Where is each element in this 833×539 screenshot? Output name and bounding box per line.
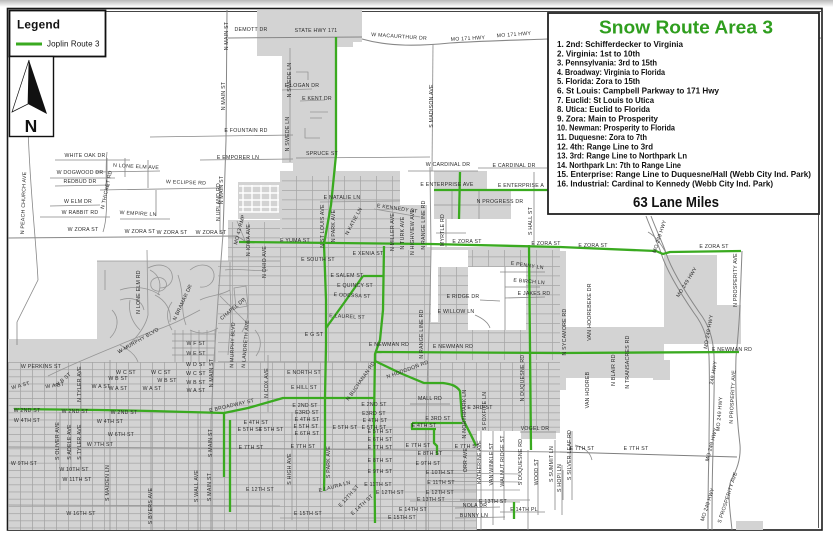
- svg-text:E 5TH ST: E 5TH ST: [294, 424, 319, 430]
- svg-text:E 11TH ST: E 11TH ST: [427, 480, 455, 486]
- svg-text:S HOPI LN: S HOPI LN: [557, 464, 563, 492]
- svg-text:E ZORA ST: E ZORA ST: [531, 241, 561, 247]
- svg-text:N TURK AVE: N TURK AVE: [400, 216, 406, 249]
- svg-text:BUNNY LN: BUNNY LN: [460, 513, 488, 519]
- svg-text:N PARK AVE: N PARK AVE: [331, 209, 337, 242]
- svg-text:W 6TH ST: W 6TH ST: [108, 432, 135, 438]
- svg-text:E 3RD ST: E 3RD ST: [467, 405, 493, 411]
- svg-text:W C ST: W C ST: [186, 371, 206, 377]
- svg-text:VAN HOOREB: VAN HOOREB: [585, 371, 591, 408]
- svg-text:VAN WINKLE ST: VAN WINKLE ST: [489, 442, 495, 486]
- svg-text:S PARK AVE: S PARK AVE: [326, 446, 332, 479]
- svg-text:N TRANSACRES RD: N TRANSACRES RD: [625, 335, 631, 388]
- svg-text:W 2ND ST: W 2ND ST: [62, 409, 89, 415]
- svg-text:S HALL ST: S HALL ST: [528, 206, 534, 235]
- svg-text:W B ST: W B ST: [157, 378, 177, 384]
- svg-text:W DOGWOOD DR: W DOGWOOD DR: [57, 170, 104, 176]
- svg-text:S MAIN ST: S MAIN ST: [207, 472, 213, 501]
- svg-text:E NEWMAN RD: E NEWMAN RD: [712, 347, 752, 353]
- svg-text:N MAIN ST: N MAIN ST: [209, 358, 215, 387]
- svg-text:W RABBIT RD: W RABBIT RD: [62, 210, 99, 216]
- svg-text:W A ST: W A ST: [187, 388, 206, 394]
- svg-text:E LOGAN DR: E LOGAN DR: [285, 83, 320, 89]
- svg-text:E CARDINAL DR: E CARDINAL DR: [492, 163, 535, 169]
- svg-text:N IOWA AVE: N IOWA AVE: [246, 224, 252, 256]
- svg-text:S BYERS AVE: S BYERS AVE: [148, 488, 154, 525]
- svg-text:E 4TH ST: E 4TH ST: [363, 418, 388, 424]
- svg-text:Snow Route Area 3: Snow Route Area 3: [599, 18, 773, 38]
- svg-text:N TYLER AVE: N TYLER AVE: [77, 366, 83, 402]
- svg-text:E XENIA ST: E XENIA ST: [353, 251, 384, 257]
- svg-text:ORR AVE: ORR AVE: [463, 448, 469, 473]
- svg-text:63 Lane Miles: 63 Lane Miles: [633, 195, 719, 211]
- svg-text:E3RD ST: E3RD ST: [295, 410, 319, 416]
- svg-text:S MADISON AVE: S MADISON AVE: [429, 84, 435, 128]
- svg-text:W E ST: W E ST: [186, 351, 206, 357]
- svg-text:E 15TH ST: E 15TH ST: [294, 511, 322, 517]
- svg-text:N RANGE LINE RD: N RANGE LINE RD: [419, 309, 425, 358]
- svg-text:S DUQUESNE RD: S DUQUESNE RD: [518, 439, 524, 486]
- svg-text:S HIGH AVE: S HIGH AVE: [287, 453, 293, 485]
- svg-text:E 12TH ST: E 12TH ST: [426, 490, 454, 496]
- svg-text:E ZORA ST: E ZORA ST: [699, 244, 729, 250]
- svg-text:S FOXFIRE LN: S FOXFIRE LN: [482, 392, 488, 430]
- svg-text:E KENT DR: E KENT DR: [302, 96, 332, 102]
- svg-text:MALL RD: MALL RD: [418, 396, 442, 402]
- svg-text:W ZORA ST: W ZORA ST: [196, 230, 227, 236]
- svg-text:N DUQUESNE RD: N DUQUESNE RD: [520, 355, 526, 402]
- svg-text:S ADELE AVE: S ADELE AVE: [67, 424, 73, 460]
- svg-text:S SILVER LEAF RD: S SILVER LEAF RD: [567, 430, 573, 480]
- svg-text:VAN HOOREBEKE DR: VAN HOOREBEKE DR: [587, 283, 593, 341]
- svg-text:N OHIO AVE: N OHIO AVE: [262, 246, 268, 278]
- svg-text:W 10TH ST: W 10TH ST: [59, 467, 89, 473]
- svg-text:S TYLER AVE: S TYLER AVE: [77, 424, 83, 460]
- svg-text:E 7TH ST: E 7TH ST: [368, 445, 393, 451]
- svg-text:E NORTH ST: E NORTH ST: [287, 370, 321, 376]
- svg-text:E ZORA ST: E ZORA ST: [452, 239, 482, 245]
- svg-text:W ZORA ST: W ZORA ST: [157, 230, 188, 236]
- svg-text:N MAIN ST: N MAIN ST: [224, 21, 230, 50]
- svg-text:E 5TH ST: E 5TH ST: [368, 429, 393, 435]
- svg-text:E RIDGE DR: E RIDGE DR: [447, 294, 480, 300]
- svg-text:E SALEM ST: E SALEM ST: [330, 273, 364, 279]
- svg-text:E 9TH ST: E 9TH ST: [416, 461, 441, 467]
- svg-text:Legend: Legend: [17, 18, 60, 32]
- svg-text:E 6TH ST: E 6TH ST: [368, 437, 393, 443]
- svg-text:E HILL ST: E HILL ST: [291, 385, 318, 391]
- svg-text:E 10TH ST: E 10TH ST: [426, 470, 454, 476]
- svg-text:E 5TH ST: E 5TH ST: [259, 427, 284, 433]
- svg-text:N SWEDE LN: N SWEDE LN: [287, 63, 293, 98]
- svg-text:W 4TH ST: W 4TH ST: [14, 418, 41, 424]
- svg-text:KATHERINE AVE: KATHERINE AVE: [477, 440, 483, 484]
- svg-text:W F ST: W F ST: [186, 341, 206, 347]
- svg-text:E NATALIE LN: E NATALIE LN: [324, 195, 361, 201]
- svg-text:WHITE OAK DR: WHITE OAK DR: [64, 153, 105, 159]
- svg-text:S MAIDEN LN: S MAIDEN LN: [105, 465, 111, 501]
- svg-text:E G ST: E G ST: [305, 332, 324, 338]
- svg-text:W 7TH ST: W 7TH ST: [87, 442, 114, 448]
- svg-text:W B ST: W B ST: [108, 376, 128, 382]
- svg-text:N MAIN ST: N MAIN ST: [221, 81, 227, 110]
- svg-text:N PROSPERITY AVE: N PROSPERITY AVE: [733, 253, 739, 307]
- svg-text:E 6TH ST: E 6TH ST: [295, 431, 320, 437]
- svg-text:W CARDINAL DR: W CARDINAL DR: [426, 162, 471, 168]
- svg-text:N PROGRESS DR: N PROGRESS DR: [477, 199, 524, 205]
- svg-text:E NEWMAN RD: E NEWMAN RD: [369, 342, 409, 348]
- svg-text:Joplin Route 3: Joplin Route 3: [47, 40, 100, 49]
- svg-text:W A ST: W A ST: [143, 386, 162, 392]
- svg-text:E 8TH ST: E 8TH ST: [418, 451, 443, 457]
- svg-text:E 7TH ST: E 7TH ST: [239, 445, 264, 451]
- svg-text:N LONE ELM RD: N LONE ELM RD: [136, 270, 142, 314]
- svg-text:E 14TH PL: E 14TH PL: [510, 507, 538, 513]
- svg-text:W ZORA ST: W ZORA ST: [68, 227, 99, 233]
- svg-text:MYRTLE RD: MYRTLE RD: [440, 214, 446, 246]
- svg-text:W 11TH ST: W 11TH ST: [63, 477, 93, 483]
- svg-text:VOGEL DR: VOGEL DR: [521, 426, 550, 432]
- svg-text:E EMPORER LN: E EMPORER LN: [217, 155, 259, 161]
- svg-text:E NEWMAN RD: E NEWMAN RD: [433, 344, 473, 350]
- svg-text:N NORTHPARK LN: N NORTHPARK LN: [462, 390, 468, 439]
- svg-text:W ZORA ST: W ZORA ST: [125, 229, 156, 235]
- svg-text:E 7TH ST: E 7TH ST: [624, 446, 649, 452]
- svg-text:SPRUCE ST: SPRUCE ST: [306, 151, 339, 157]
- svg-text:E 4TH ST: E 4TH ST: [412, 423, 437, 429]
- svg-text:E FOUNTAIN RD: E FOUNTAIN RD: [224, 128, 267, 134]
- svg-text:N BLAIR RD: N BLAIR RD: [611, 354, 617, 386]
- svg-text:E 3RD ST: E 3RD ST: [425, 416, 451, 422]
- svg-text:WALNUT RIDGE ST: WALNUT RIDGE ST: [500, 435, 506, 487]
- svg-text:E 11TH ST: E 11TH ST: [364, 482, 392, 488]
- svg-text:N SYCAMORE RD: N SYCAMORE RD: [562, 308, 568, 355]
- svg-text:W B ST: W B ST: [186, 380, 206, 386]
- svg-text:E ZORA ST: E ZORA ST: [578, 243, 608, 249]
- svg-text:W 2ND ST: W 2ND ST: [14, 408, 41, 414]
- svg-text:S OLIVER AVE: S OLIVER AVE: [55, 422, 61, 460]
- svg-text:E 2ND ST: E 2ND ST: [292, 403, 318, 409]
- svg-text:E 8TH ST: E 8TH ST: [368, 458, 393, 464]
- svg-text:N UPLAND RD: N UPLAND RD: [216, 183, 222, 221]
- svg-text:E 13TH ST: E 13TH ST: [417, 497, 445, 503]
- svg-text:N ST LOUIS AVE: N ST LOUIS AVE: [320, 204, 326, 248]
- svg-text:E ENTERPRISE AVE: E ENTERPRISE AVE: [420, 182, 473, 188]
- svg-text:W C ST: W C ST: [151, 370, 171, 376]
- svg-text:E 12TH ST: E 12TH ST: [246, 487, 274, 493]
- svg-text:E 4TH ST: E 4TH ST: [295, 417, 320, 423]
- svg-text:E 15TH ST: E 15TH ST: [388, 515, 416, 521]
- svg-text:N COX AVE: N COX AVE: [264, 368, 270, 398]
- svg-text:E SOUTH ST: E SOUTH ST: [301, 257, 335, 263]
- svg-text:E 9TH ST: E 9TH ST: [368, 469, 393, 475]
- svg-text:N: N: [25, 116, 38, 136]
- svg-text:W 4TH ST: W 4TH ST: [97, 419, 124, 425]
- svg-text:W 9TH ST: W 9TH ST: [11, 461, 38, 467]
- svg-text:W ELM DR: W ELM DR: [64, 199, 92, 205]
- svg-text:WOOD ST: WOOD ST: [534, 458, 540, 485]
- svg-text:E 12TH ST: E 12TH ST: [376, 490, 404, 496]
- svg-text:E 7TH ST: E 7TH ST: [406, 443, 431, 449]
- svg-text:E3RD ST: E3RD ST: [362, 411, 386, 417]
- svg-text:S MAIN ST: S MAIN ST: [208, 428, 214, 457]
- svg-text:W 16TH ST: W 16TH ST: [66, 511, 96, 517]
- svg-text:E QUINCY ST: E QUINCY ST: [337, 283, 373, 289]
- svg-text:N MILLER AVE: N MILLER AVE: [390, 213, 396, 251]
- svg-text:E 14TH ST: E 14TH ST: [399, 507, 427, 513]
- svg-text:NOLA DR: NOLA DR: [463, 503, 488, 509]
- svg-text:S WALL AVE: S WALL AVE: [194, 470, 200, 503]
- svg-text:E 2ND ST: E 2ND ST: [361, 402, 387, 408]
- svg-text:E 7TH ST: E 7TH ST: [291, 444, 316, 450]
- svg-text:W A ST: W A ST: [109, 386, 128, 392]
- svg-text:E JAKES RD: E JAKES RD: [518, 291, 551, 297]
- svg-text:N RANGE LINE RD: N RANGE LINE RD: [421, 200, 427, 249]
- svg-text:N SWEDE LN: N SWEDE LN: [285, 117, 291, 152]
- svg-text:E 5TH ST: E 5TH ST: [333, 425, 358, 431]
- svg-text:N HIGHVIEW AVE: N HIGHVIEW AVE: [410, 209, 416, 255]
- svg-text:W 2ND ST: W 2ND ST: [111, 410, 138, 416]
- svg-text:E WILLOW LN: E WILLOW LN: [438, 309, 475, 315]
- svg-text:W D ST: W D ST: [186, 362, 206, 368]
- svg-text:STATE HWY 171: STATE HWY 171: [295, 28, 338, 34]
- svg-text:E YUMA ST: E YUMA ST: [280, 238, 310, 244]
- svg-text:E 4TH ST: E 4TH ST: [244, 420, 269, 426]
- svg-text:E 7TH ST: E 7TH ST: [570, 446, 595, 452]
- svg-text:S SUMMIT LN: S SUMMIT LN: [549, 446, 555, 482]
- svg-text:REDBUD DR: REDBUD DR: [63, 179, 96, 185]
- svg-text:DEMOTT DR: DEMOTT DR: [235, 27, 268, 33]
- svg-text:16. Industrial: Cardinal to Ke: 16. Industrial: Cardinal to Kennedy (Web…: [557, 179, 773, 189]
- svg-text:W PERKINS ST: W PERKINS ST: [21, 364, 62, 370]
- svg-text:E ENTERPRISE A: E ENTERPRISE A: [498, 183, 544, 189]
